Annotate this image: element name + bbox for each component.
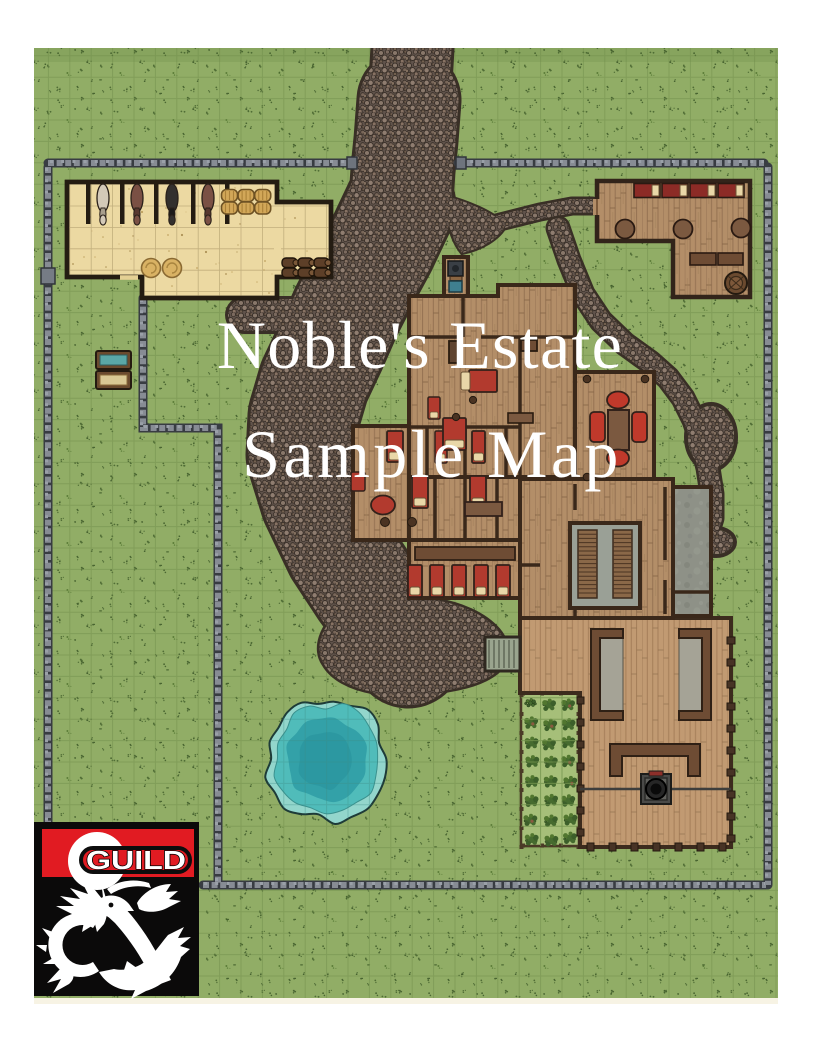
svg-text:Sample Map: Sample Map <box>242 416 622 492</box>
svg-text:GUILD: GUILD <box>86 845 186 875</box>
svg-text:Noble's Estate: Noble's Estate <box>217 307 623 383</box>
